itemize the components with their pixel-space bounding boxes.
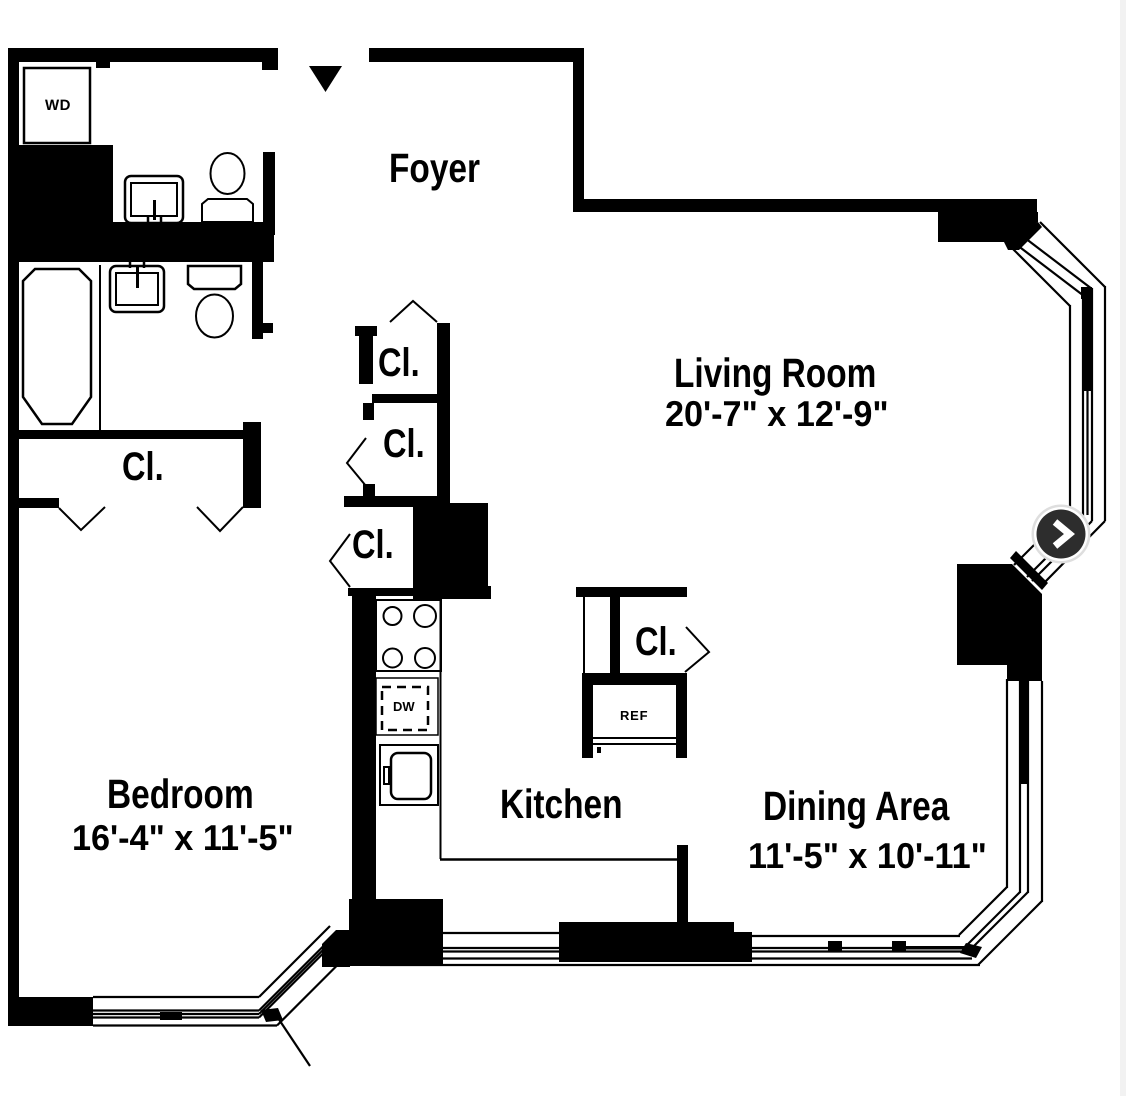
svg-text:11'-5" x 10'-11": 11'-5" x 10'-11"	[748, 835, 987, 876]
svg-text:Cl.: Cl.	[122, 445, 164, 489]
svg-text:Bedroom: Bedroom	[107, 771, 254, 817]
svg-text:Foyer: Foyer	[389, 145, 480, 191]
svg-text:Dining Area: Dining Area	[763, 783, 950, 829]
svg-text:Cl.: Cl.	[352, 523, 394, 567]
svg-text:Kitchen: Kitchen	[500, 781, 623, 827]
svg-text:Living Room: Living Room	[674, 350, 876, 396]
svg-text:Cl.: Cl.	[378, 341, 420, 385]
svg-text:20'-7" x 12'-9": 20'-7" x 12'-9"	[665, 393, 889, 434]
svg-text:DW: DW	[393, 699, 415, 714]
svg-text:REF: REF	[620, 708, 648, 723]
svg-text:WD: WD	[45, 97, 71, 114]
svg-text:16'-4" x 11'-5": 16'-4" x 11'-5"	[72, 817, 294, 858]
svg-text:Cl.: Cl.	[635, 620, 677, 664]
svg-text:Cl.: Cl.	[383, 422, 425, 466]
